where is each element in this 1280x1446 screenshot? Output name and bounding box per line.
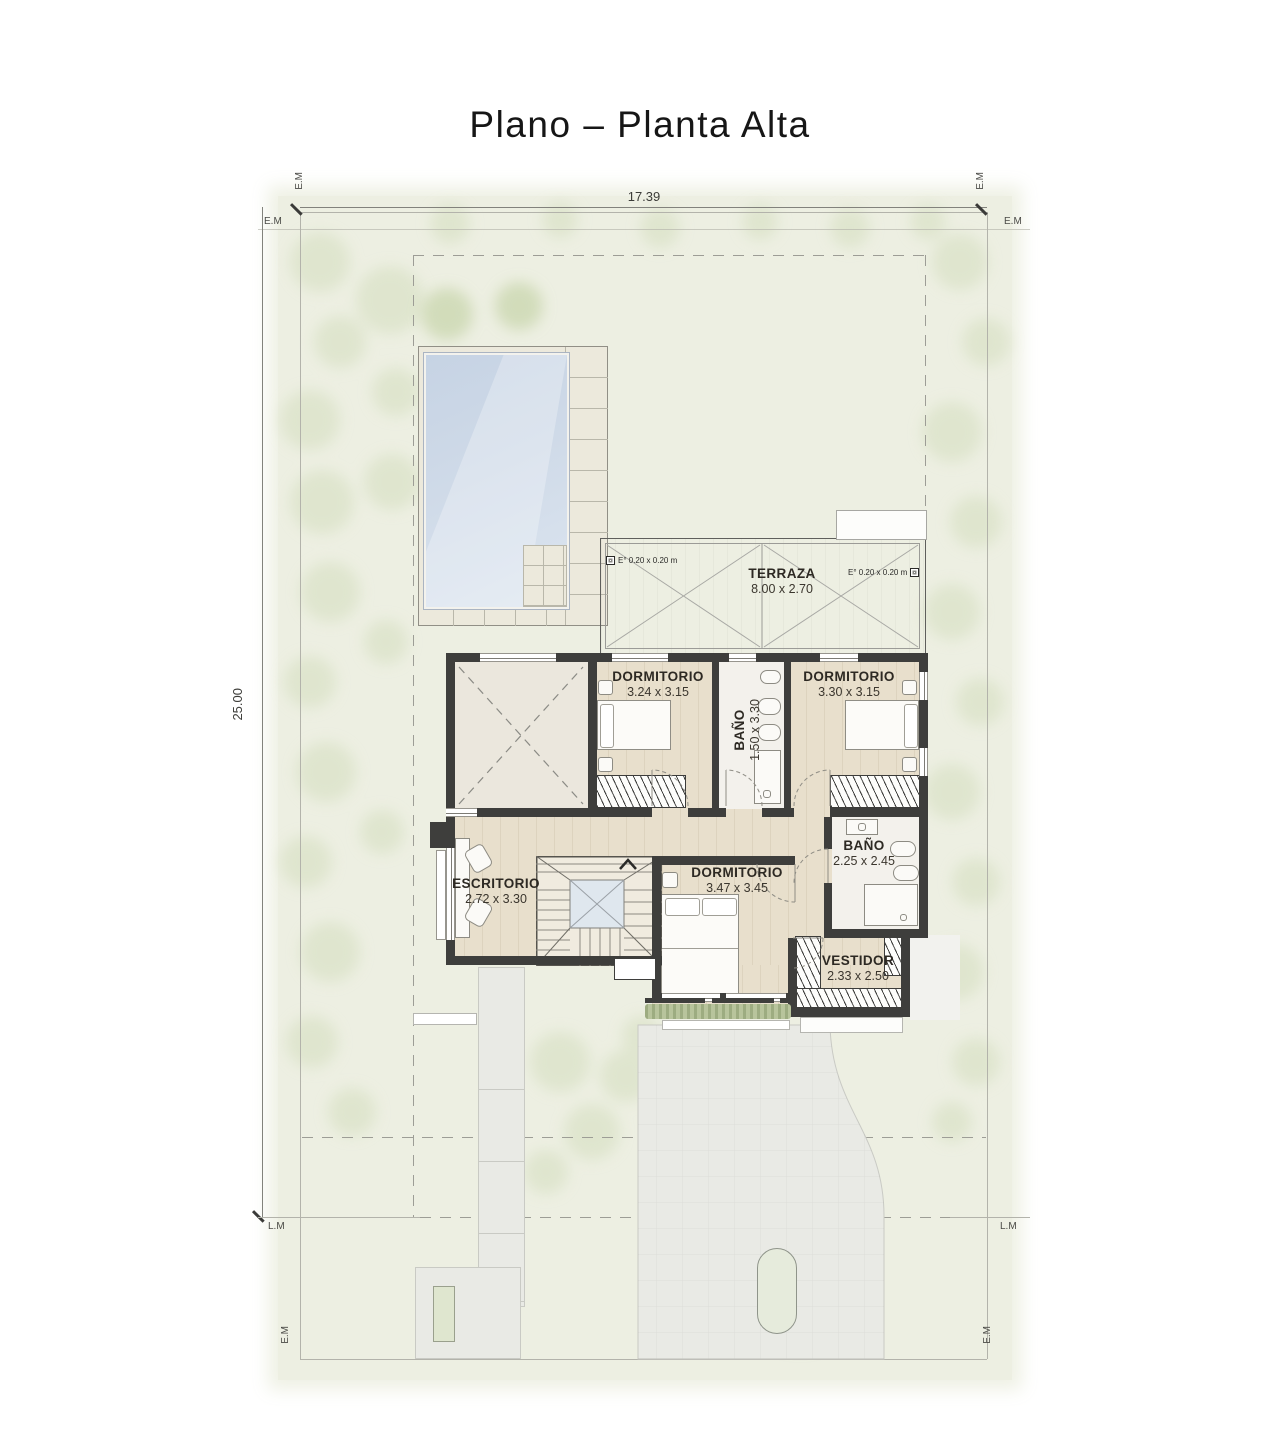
balcony-railing [712, 998, 774, 1003]
room-label-dormitorio-2: DORMITORIO 3.30 x 3.15 [803, 669, 895, 699]
lm-marker-right: L.M [1000, 1221, 1017, 1232]
room-label-terraza: TERRAZA 8.00 x 2.70 [748, 566, 815, 596]
column-note-text: E° 0.20 x 0.20 m [848, 568, 907, 577]
plot-line-right [987, 212, 988, 1359]
dim-width-label: 17.39 [621, 189, 667, 204]
paved-apron [415, 1267, 521, 1359]
em-axis-line [258, 229, 1030, 230]
lm-line-left [258, 1217, 420, 1218]
lm-line-right [950, 1217, 1030, 1218]
pool-deck-corner [523, 545, 567, 607]
em-marker-bottom-right: E.M [982, 1326, 993, 1344]
walkway-joint [479, 1089, 524, 1090]
room-label-banio-2: BAÑO 2.25 x 2.45 [833, 838, 895, 868]
em-marker-top-right-h: E.M [1004, 216, 1022, 227]
em-marker-bottom-left: E.M [280, 1326, 291, 1344]
plot-line-top [300, 212, 987, 213]
setback-line-left [413, 255, 414, 1217]
balcony-railing [780, 998, 791, 1003]
ground-floor-outline [662, 1020, 790, 1030]
column-note-right: E° 0.20 x 0.20 m [848, 568, 919, 577]
pool [418, 346, 608, 626]
em-marker-top-left-h: E.M [264, 216, 282, 227]
column-note-left: E° 0.20 x 0.20 m [606, 556, 677, 565]
walkway-joint [479, 1161, 524, 1162]
em-marker-top-left-v: E.M [294, 172, 305, 190]
em-marker-top-right-v: E.M [975, 172, 986, 190]
column-note-text: E° 0.20 x 0.20 m [618, 556, 677, 565]
room-label-dormitorio-3: DORMITORIO 3.47 x 3.45 [691, 865, 783, 895]
balcony-railing [645, 998, 705, 1003]
dim-height-label: 25.00 [230, 688, 245, 721]
hedge [645, 1004, 791, 1019]
tree-planter [757, 1248, 797, 1334]
room-label-vestidor: VESTIDOR 2.33 x 2.50 [822, 953, 894, 983]
terrace-roof [836, 510, 927, 540]
setback-line-top [413, 255, 925, 256]
plot-line-left [300, 212, 301, 1359]
room-label-dormitorio-1: DORMITORIO 3.24 x 3.15 [612, 669, 704, 699]
dim-line-top [300, 207, 987, 208]
dim-line-left [262, 207, 263, 1218]
setback-line-right [925, 255, 926, 540]
room-label-banio-1: BAÑO 1.50 x 3.30 [732, 699, 762, 761]
exterior-landing [800, 1017, 903, 1033]
apron-planter [433, 1286, 455, 1342]
walkway-joint [479, 1233, 524, 1234]
column-icon [910, 568, 919, 577]
room-label-escritorio: ESCRITORIO 2.72 x 3.30 [452, 876, 540, 906]
floor-plan-page: Plano – Planta Alta [0, 0, 1280, 1446]
column-icon [606, 556, 615, 565]
lm-marker-left: L.M [268, 1221, 285, 1232]
